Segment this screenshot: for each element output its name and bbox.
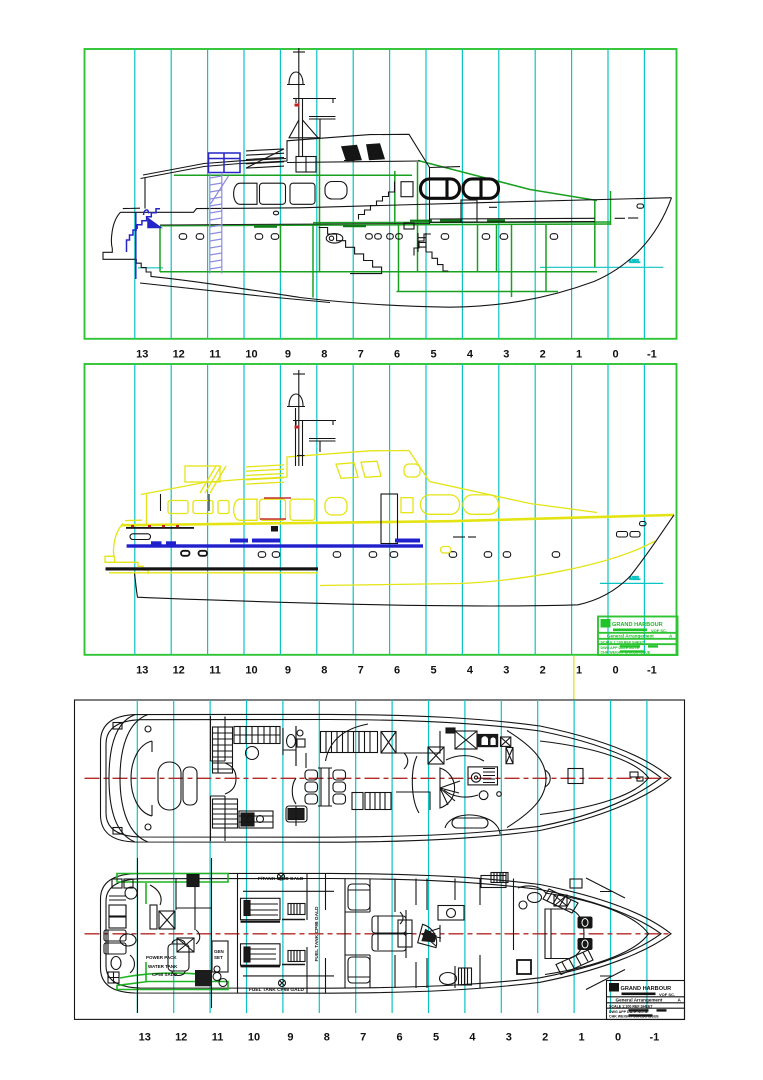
svg-text:12: 12 — [173, 349, 185, 361]
svg-text:11: 11 — [212, 1032, 224, 1044]
svg-text:10: 10 — [245, 665, 257, 677]
svg-text:WATER TANK: WATER TANK — [148, 964, 178, 969]
svg-text:8: 8 — [321, 665, 327, 677]
svg-text:4: 4 — [469, 1032, 476, 1044]
svg-text:1: 1 — [576, 349, 582, 361]
svg-text:6: 6 — [394, 349, 400, 361]
svg-text:SET: SET — [214, 955, 223, 960]
svg-text:13: 13 — [139, 1032, 151, 1044]
svg-text:13: 13 — [136, 349, 148, 361]
svg-text:CP50 SALO: CP50 SALO — [152, 972, 178, 977]
svg-text:6: 6 — [397, 1032, 403, 1044]
svg-text:0: 0 — [612, 349, 618, 361]
svg-text:5: 5 — [433, 1032, 439, 1044]
svg-text:2: 2 — [540, 349, 546, 361]
svg-text:5: 5 — [430, 349, 436, 361]
svg-text:2: 2 — [542, 1032, 548, 1044]
svg-text:FUEL TANK CP98 GALD: FUEL TANK CP98 GALD — [314, 906, 320, 962]
svg-text:FUEL TANK CP98 GALD: FUEL TANK CP98 GALD — [249, 987, 305, 993]
svg-text:12: 12 — [173, 665, 185, 677]
svg-text:-1: -1 — [650, 1032, 660, 1044]
svg-text:2: 2 — [540, 665, 546, 677]
svg-text:4: 4 — [467, 349, 474, 361]
svg-text:0: 0 — [612, 665, 618, 677]
svg-text:7: 7 — [358, 665, 364, 677]
svg-text:8: 8 — [321, 349, 327, 361]
svg-text:11: 11 — [209, 349, 221, 361]
svg-text:1: 1 — [579, 1032, 585, 1044]
svg-text:0: 0 — [615, 1032, 621, 1044]
svg-text:1: 1 — [576, 665, 582, 677]
svg-text:7: 7 — [358, 349, 364, 361]
svg-text:13: 13 — [136, 665, 148, 677]
svg-text:GEN: GEN — [214, 949, 224, 954]
svg-text:12: 12 — [175, 1032, 187, 1044]
svg-text:9: 9 — [287, 1032, 293, 1044]
svg-text:5: 5 — [430, 665, 436, 677]
svg-text:11: 11 — [209, 665, 221, 677]
svg-text:6: 6 — [394, 665, 400, 677]
svg-text:3: 3 — [503, 665, 509, 677]
svg-text:3: 3 — [503, 349, 509, 361]
svg-text:-1: -1 — [647, 349, 657, 361]
svg-text:9: 9 — [285, 665, 291, 677]
svg-text:8: 8 — [324, 1032, 330, 1044]
svg-text:3: 3 — [506, 1032, 512, 1044]
svg-text:10: 10 — [248, 1032, 260, 1044]
svg-text:7: 7 — [360, 1032, 366, 1044]
svg-text:9: 9 — [285, 349, 291, 361]
svg-text:-1: -1 — [647, 665, 657, 677]
svg-text:General Arrangement: General Arrangement — [616, 998, 663, 1003]
svg-text:10: 10 — [245, 349, 257, 361]
svg-text:POWER PACK: POWER PACK — [146, 955, 177, 960]
svg-text:4: 4 — [467, 665, 474, 677]
